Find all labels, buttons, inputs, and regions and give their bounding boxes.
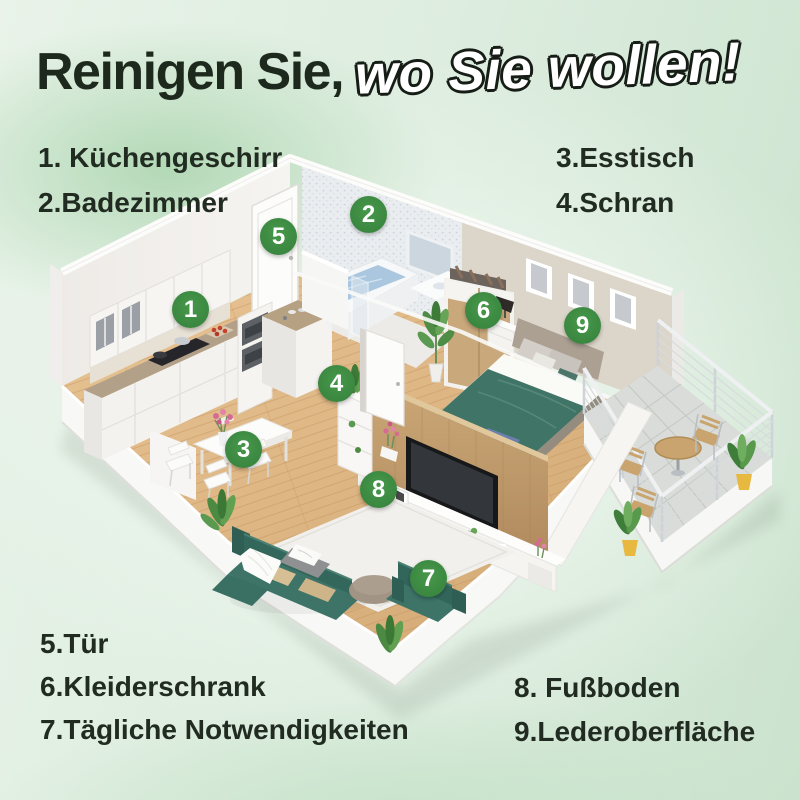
marker-dining-table: 3	[225, 431, 262, 468]
open-door	[360, 328, 404, 426]
legend-item-6: 6.Kleiderschrank	[40, 673, 409, 701]
headline-outline-text: wo Sie wollen!	[354, 29, 742, 106]
marker-daily-necessities: 7	[410, 560, 447, 597]
legend-item-2: 2.Badezimmer	[38, 189, 282, 217]
marker-door: 5	[260, 218, 297, 255]
legend-item-7: 7.Tägliche Notwendigkeiten	[40, 716, 409, 744]
legend-item-4: 4.Schran	[556, 189, 695, 217]
legend-top-left: 1. Küchengeschirr 2.Badezimmer	[38, 144, 282, 234]
marker-cabinet: 4	[318, 365, 355, 402]
legend-top-right: 3.Esstisch 4.Schran	[556, 144, 695, 234]
legend-item-1: 1. Küchengeschirr	[38, 144, 282, 172]
legend-item-9: 9.Lederoberfläche	[514, 718, 755, 746]
advertisement-canvas: Reinigen Sie, wo Sie wollen! 1. Küchenge…	[0, 0, 800, 800]
legend-bottom-right: 8. Fußboden 9.Lederoberfläche	[514, 674, 755, 762]
marker-kitchen-dishes: 1	[172, 291, 209, 328]
headline-dark-text: Reinigen Sie,	[36, 42, 343, 102]
marker-floor: 8	[360, 471, 397, 508]
headline: Reinigen Sie, wo Sie wollen!	[36, 38, 741, 102]
marker-leather-surface: 9	[564, 307, 601, 344]
legend-item-5: 5.Tür	[40, 630, 409, 658]
legend-item-8: 8. Fußboden	[514, 674, 755, 702]
marker-bathroom: 2	[350, 196, 387, 233]
legend-item-3: 3.Esstisch	[556, 144, 695, 172]
marker-wardrobe: 6	[465, 292, 502, 329]
legend-bottom-left: 5.Tür 6.Kleiderschrank 7.Tägliche Notwen…	[40, 630, 409, 759]
